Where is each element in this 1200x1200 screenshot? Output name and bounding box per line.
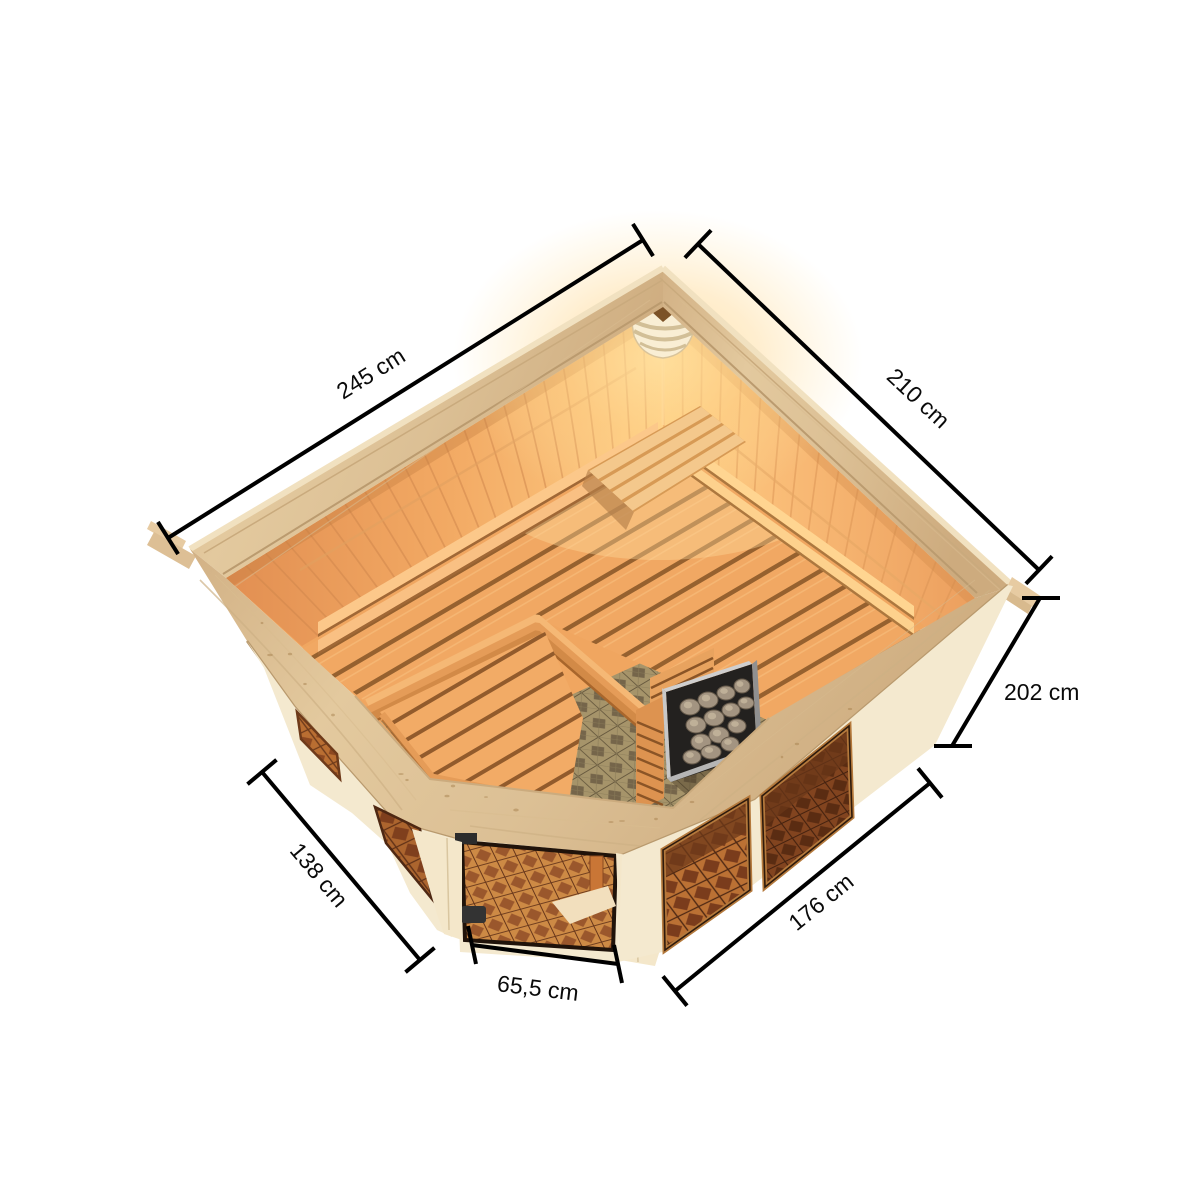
svg-text:202 cm: 202 cm (1004, 679, 1079, 705)
